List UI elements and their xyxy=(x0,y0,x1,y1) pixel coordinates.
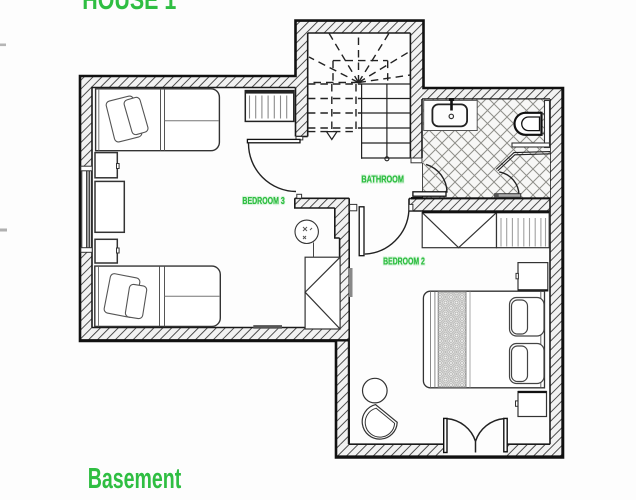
svg-text:BEDROOM 2: BEDROOM 2 xyxy=(383,256,425,267)
svg-text:Basement: Basement xyxy=(88,463,182,495)
svg-text:HOUSE 1: HOUSE 1 xyxy=(82,0,176,15)
svg-text:BEDROOM 3: BEDROOM 3 xyxy=(242,196,285,207)
svg-text:BATHROOM: BATHROOM xyxy=(361,175,404,186)
